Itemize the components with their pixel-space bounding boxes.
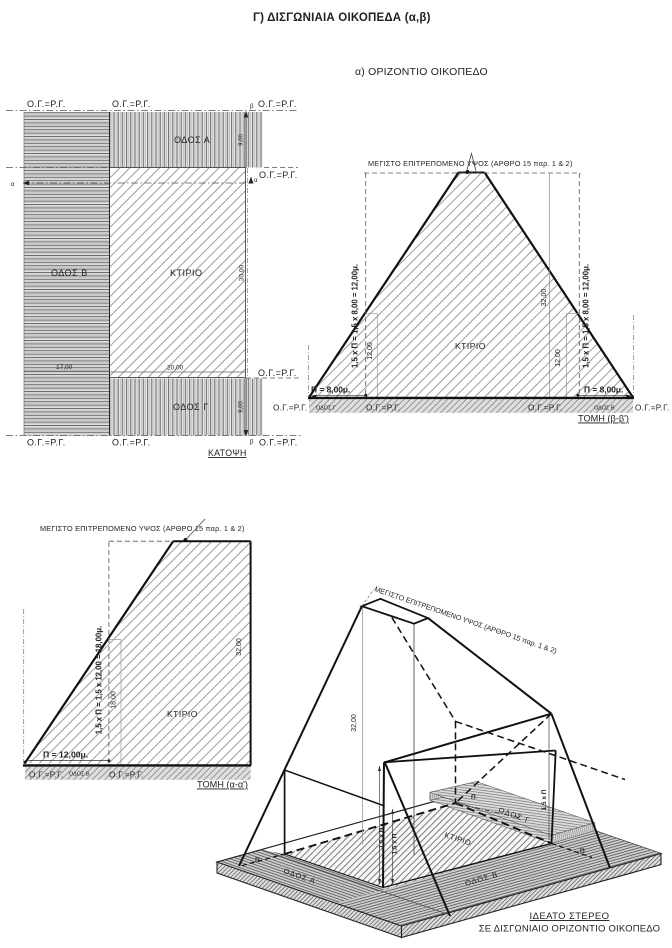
svg-text:18,00: 18,00 (111, 691, 118, 709)
svg-text:ΟΔΟΣ Γ: ΟΔΟΣ Γ (173, 402, 209, 412)
svg-text:Ο.Γ.=Ρ.Γ.: Ο.Γ.=Ρ.Γ. (27, 438, 66, 448)
svg-text:Π: Π (580, 848, 585, 855)
svg-text:β: β (250, 104, 254, 110)
svg-text:Ο.Γ.=Ρ.Γ.: Ο.Γ.=Ρ.Γ. (258, 99, 297, 109)
svg-text:32,00: 32,00 (236, 638, 243, 656)
svg-text:Ο.Γ.=Ρ.Γ.: Ο.Γ.=Ρ.Γ. (109, 771, 144, 780)
svg-text:1,5 x Π: 1,5 x Π (541, 789, 548, 810)
svg-text:ΟΔΟΣ Β: ΟΔΟΣ Β (594, 406, 615, 412)
svg-text:9,00: 9,00 (239, 401, 245, 413)
svg-text:17,00: 17,00 (56, 364, 73, 371)
svg-text:ΚΤΙΡΙΟ: ΚΤΙΡΙΟ (167, 709, 198, 719)
svg-text:Ο.Γ.=Ρ.Γ.: Ο.Γ.=Ρ.Γ. (273, 404, 308, 413)
svg-text:1,5 x Π: 1,5 x Π (392, 833, 399, 854)
svg-text:1,5 x Π = 1,5 x 12,00 = 18,00μ: 1,5 x Π = 1,5 x 12,00 = 18,00μ. (95, 626, 104, 734)
svg-text:Ο.Γ.=Ρ.Γ.: Ο.Γ.=Ρ.Γ. (112, 99, 151, 109)
svg-text:ΙΔΕΑΤΟ ΣΤΕΡΕΟ: ΙΔΕΑΤΟ ΣΤΕΡΕΟ (530, 911, 610, 922)
svg-text:1,5 x Π: 1,5 x Π (379, 827, 386, 848)
svg-text:α) ΟΡΙΖΟΝΤΙΟ ΟΙΚΟΠΕΔΟ: α) ΟΡΙΖΟΝΤΙΟ ΟΙΚΟΠΕΔΟ (355, 66, 488, 78)
svg-text:Ο.Γ.=Ρ.Γ.: Ο.Γ.=Ρ.Γ. (528, 404, 563, 413)
svg-text:β: β (250, 440, 254, 446)
svg-text:Ο.Γ.=Ρ.Γ.: Ο.Γ.=Ρ.Γ. (635, 404, 670, 413)
svg-text:ΟΔΟΣ Β: ΟΔΟΣ Β (69, 772, 90, 778)
svg-text:ΜΕΓΙΣΤΟ ΕΠΙΤΡΕΠΟΜΕΝΟ ΥΨΟΣ (ΑΡ: ΜΕΓΙΣΤΟ ΕΠΙΤΡΕΠΟΜΕΝΟ ΥΨΟΣ (ΑΡΘΡΟ 15 παρ.… (40, 524, 245, 533)
svg-text:ΚΤΙΡΙΟ: ΚΤΙΡΙΟ (170, 268, 203, 278)
svg-text:ΚΑΤΟΨΗ: ΚΑΤΟΨΗ (208, 448, 247, 458)
svg-text:30,00: 30,00 (239, 264, 246, 281)
svg-text:α: α (254, 178, 258, 184)
svg-text:ΟΔΟΣ Α: ΟΔΟΣ Α (174, 135, 210, 145)
svg-text:ΟΔΟΣ Β: ΟΔΟΣ Β (51, 268, 88, 278)
svg-text:Ο.Γ.=Ρ.Γ.: Ο.Γ.=Ρ.Γ. (259, 170, 298, 180)
svg-text:Π: Π (255, 857, 260, 864)
svg-text:Ο.Γ.=Ρ.Γ.: Ο.Γ.=Ρ.Γ. (366, 404, 401, 413)
svg-text:32,00: 32,00 (351, 714, 358, 732)
svg-text:Γ) ΔΙΣΓΩΝΙΑΙΑ ΟΙΚΟΠΕΔΑ (α,β): Γ) ΔΙΣΓΩΝΙΑΙΑ ΟΙΚΟΠΕΔΑ (α,β) (253, 12, 431, 24)
svg-text:Ο.Γ.=Ρ.Γ.: Ο.Γ.=Ρ.Γ. (27, 99, 66, 109)
svg-text:Π = 12,00μ.: Π = 12,00μ. (43, 750, 88, 760)
svg-text:32,00: 32,00 (541, 289, 548, 307)
svg-text:Π = 8,00μ.: Π = 8,00μ. (311, 385, 350, 395)
svg-text:1,5 x Π = 1,5 x 8,00 = 12,00μ.: 1,5 x Π = 1,5 x 8,00 = 12,00μ. (582, 264, 591, 368)
svg-text:12,00: 12,00 (555, 349, 562, 367)
svg-text:ΟΔΟΣ Γ: ΟΔΟΣ Γ (316, 406, 336, 412)
svg-text:ΣΕ ΔΙΣΓΩΝΙΑΙΟ ΟΡΙΖΟΝΤΙΟ ΟΙΚΟΠΕ: ΣΕ ΔΙΣΓΩΝΙΑΙΟ ΟΡΙΖΟΝΤΙΟ ΟΙΚΟΠΕΔΟ (479, 924, 661, 935)
svg-text:Ο.Γ.=Ρ.Γ.: Ο.Γ.=Ρ.Γ. (259, 438, 298, 448)
svg-text:20,00: 20,00 (167, 365, 184, 372)
svg-text:Π: Π (471, 794, 476, 801)
svg-text:12,00: 12,00 (367, 342, 374, 360)
svg-text:ΜΕΓΙΣΤΟ ΕΠΙΤΡΕΠΟΜΕΝΟ ΥΨΟΣ (ΑΡ: ΜΕΓΙΣΤΟ ΕΠΙΤΡΕΠΟΜΕΝΟ ΥΨΟΣ (ΑΡΘΡΟ 15 παρ.… (368, 159, 573, 168)
svg-text:ΤΟΜΗ (β-β'): ΤΟΜΗ (β-β') (578, 414, 629, 424)
svg-text:Ο.Γ.=Ρ.Γ.: Ο.Γ.=Ρ.Γ. (258, 368, 297, 378)
svg-text:9,00: 9,00 (239, 134, 245, 146)
svg-text:α: α (11, 182, 15, 188)
svg-text:Π = 8,00μ.: Π = 8,00μ. (584, 385, 623, 395)
svg-text:1,5 x Π = 1,5 x 8,00 = 12,00μ.: 1,5 x Π = 1,5 x 8,00 = 12,00μ. (351, 264, 360, 368)
svg-text:Ο.Γ.=Ρ.Γ.: Ο.Γ.=Ρ.Γ. (29, 771, 64, 780)
svg-text:ΚΤΙΡΙΟ: ΚΤΙΡΙΟ (455, 341, 486, 351)
svg-text:Ο.Γ.=Ρ.Γ.: Ο.Γ.=Ρ.Γ. (112, 438, 151, 448)
svg-text:ΤΟΜΗ (α-α'): ΤΟΜΗ (α-α') (197, 780, 248, 790)
